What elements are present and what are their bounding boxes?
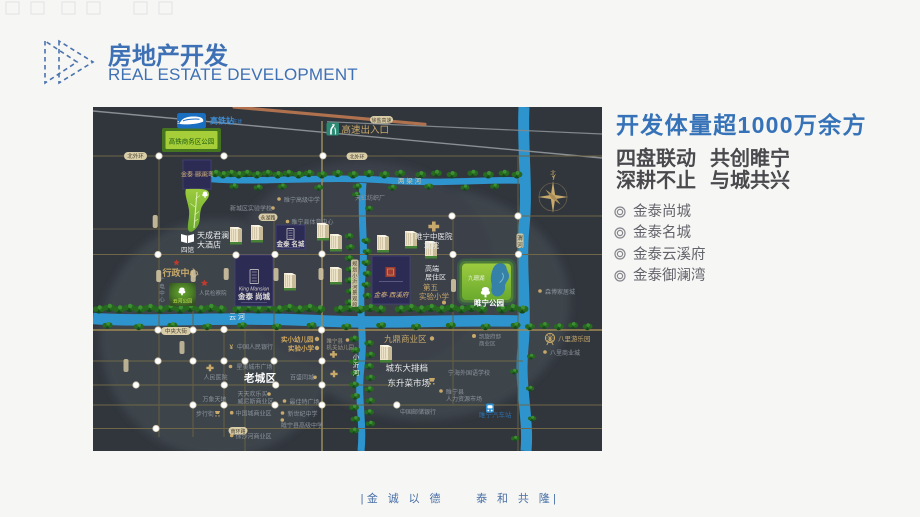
svg-text:北外环: 北外环	[349, 153, 364, 160]
svg-text:高端: 高端	[425, 264, 439, 273]
svg-text:南环路: 南环路	[230, 428, 245, 435]
svg-text:在建: 在建	[233, 118, 242, 125]
svg-text:睢宁公园: 睢宁公园	[474, 298, 504, 308]
svg-text:金泰·郦澜湾: 金泰·郦澜湾	[181, 171, 213, 179]
svg-text:实验小学: 实验小学	[288, 344, 315, 353]
svg-text:最佳特广场: 最佳特广场	[290, 398, 320, 406]
svg-text:中央大街: 中央大街	[165, 327, 188, 335]
svg-text:天成君澜: 天成君澜	[197, 230, 229, 240]
svg-text:睢宁县: 睢宁县	[446, 388, 464, 396]
svg-text:¥: ¥	[230, 344, 234, 351]
svg-text:老城区: 老城区	[243, 372, 277, 385]
svg-text:实小幼儿园: 实小幼儿园	[281, 335, 314, 344]
svg-text:睢宁高级中学: 睢宁高级中学	[284, 196, 320, 204]
svg-text:东升菜市场: 东升菜市场	[388, 378, 431, 388]
svg-text:四馆: 四馆	[181, 245, 195, 254]
svg-text:河: 河	[353, 369, 360, 377]
svg-text:北院: 北院	[424, 240, 439, 250]
svg-text:机关幼儿园: 机关幼儿园	[327, 344, 355, 352]
svg-text:心: 心	[159, 297, 165, 304]
svg-text:九鼎商业区: 九鼎商业区	[384, 334, 427, 344]
svg-text:段: 段	[352, 300, 358, 308]
svg-text:森博家居城: 森博家居城	[545, 288, 575, 296]
svg-text:睢宁汽车站: 睢宁汽车站	[479, 410, 512, 419]
svg-text:中国城商业区: 中国城商业区	[236, 410, 272, 418]
svg-text:居住区: 居住区	[425, 273, 446, 282]
svg-text:人民医院: 人民医院	[204, 374, 228, 382]
svg-text:高速出入口: 高速出入口	[342, 124, 390, 136]
svg-text:九珊湖: 九珊湖	[468, 274, 485, 282]
svg-text:八里游乐园: 八里游乐园	[558, 334, 591, 343]
svg-text:城东大排档: 城东大排档	[386, 363, 429, 373]
svg-text:两 梁 河: 两 梁 河	[398, 176, 422, 185]
svg-text:百盛同城: 百盛同城	[290, 374, 314, 382]
svg-text:沂: 沂	[353, 360, 360, 369]
svg-text:小: 小	[353, 352, 360, 361]
svg-text:中国邮储银行: 中国邮储银行	[400, 408, 436, 416]
svg-text:实验小学: 实验小学	[419, 291, 449, 301]
svg-text:第五: 第五	[423, 282, 438, 292]
svg-text:睢宁县高级中学: 睢宁县高级中学	[281, 422, 323, 430]
svg-text:永湖路: 永湖路	[260, 214, 275, 221]
svg-text:商业区: 商业区	[479, 340, 496, 348]
svg-text:威尼斯商业区: 威尼斯商业区	[238, 398, 274, 406]
svg-text:北: 北	[550, 169, 556, 177]
svg-text:睢宁中医院: 睢宁中医院	[415, 231, 453, 241]
svg-text:云 河: 云 河	[229, 313, 245, 321]
svg-text:电: 电	[159, 283, 165, 291]
svg-text:星美城市广场: 星美城市广场	[237, 363, 273, 371]
svg-text:八里商业城: 八里商业城	[550, 349, 580, 357]
svg-text:云河公园: 云河公园	[173, 298, 192, 305]
svg-text:沂: 沂	[352, 277, 358, 285]
svg-text:北外环: 北外环	[127, 152, 144, 160]
svg-text:中国人民银行: 中国人民银行	[237, 343, 273, 351]
svg-text:人力资源市场: 人力资源市场	[446, 395, 482, 403]
svg-text:新城区实验学校: 新城区实验学校	[230, 205, 272, 213]
svg-text:天天欢乐买: 天天欢乐买	[238, 390, 268, 398]
svg-text:新世纪中学: 新世纪中学	[288, 410, 318, 418]
svg-text:高铁站: 高铁站	[210, 116, 234, 126]
svg-text:天虹纺织厂: 天虹纺织厂	[355, 194, 385, 202]
svg-text:大酒店: 大酒店	[197, 240, 221, 250]
svg-text:金泰 尚城: 金泰 尚城	[237, 291, 271, 301]
svg-text:睢宁县: 睢宁县	[327, 337, 344, 345]
svg-text:划: 划	[352, 266, 357, 274]
svg-text:河: 河	[352, 283, 358, 291]
svg-text:河: 河	[517, 241, 523, 249]
svg-text:徐盐高速: 徐盐高速	[371, 117, 391, 124]
svg-text:金泰 名城: 金泰 名城	[276, 239, 305, 248]
svg-text:高铁商务区公园: 高铁商务区公园	[169, 137, 215, 146]
svg-text:金泰·西溪府: 金泰·西溪府	[374, 291, 410, 299]
svg-text:凯旋府邸: 凯旋府邸	[479, 333, 502, 341]
svg-text:步行街: 步行街	[196, 410, 214, 418]
svg-text:小: 小	[352, 271, 358, 279]
svg-text:渭: 渭	[517, 234, 523, 242]
svg-text:中: 中	[159, 289, 165, 297]
svg-text:人民检察院: 人民检察院	[199, 289, 227, 297]
svg-text:规: 规	[352, 260, 358, 268]
svg-text:宁海外国语学校: 宁海外国语学校	[448, 369, 490, 377]
